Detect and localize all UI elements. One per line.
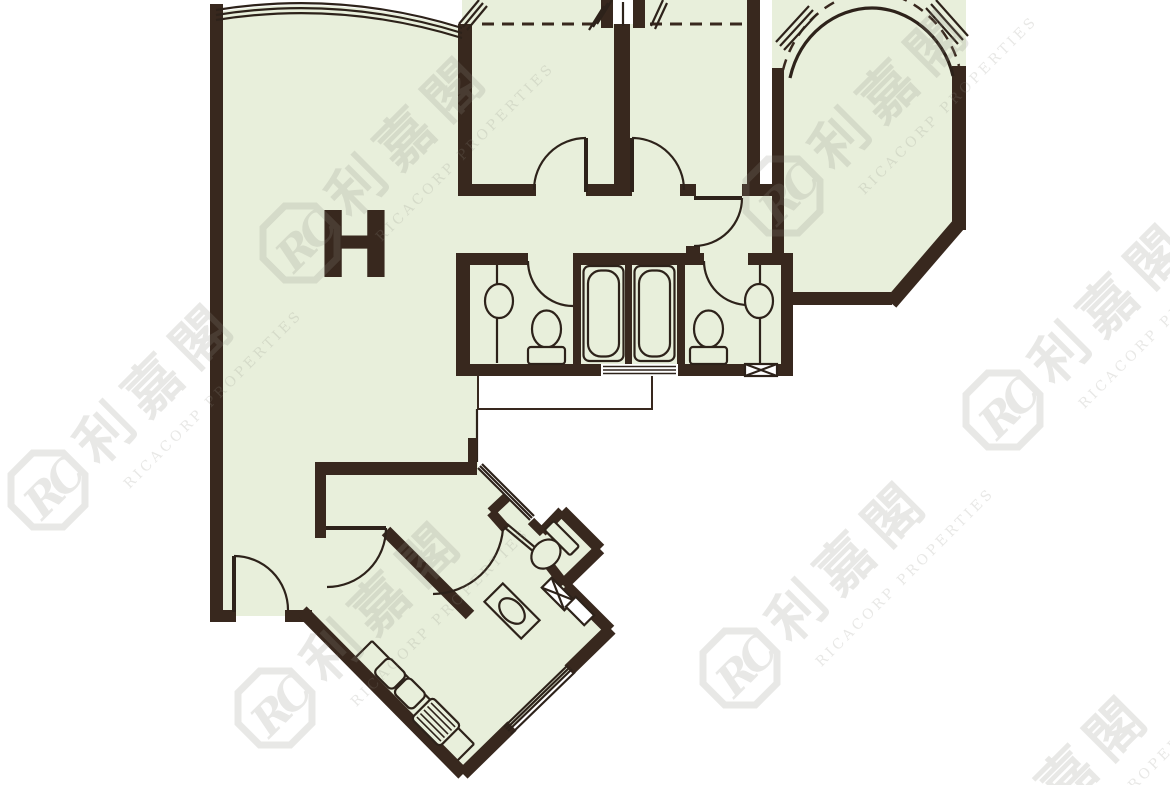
watermark-7: RC 利嘉閣 RICACORP PROPERTIES bbox=[910, 641, 1170, 785]
wall-tub-partition bbox=[625, 264, 632, 364]
bath1-tub bbox=[584, 266, 624, 361]
wall-stub-hallway bbox=[686, 246, 700, 256]
wall-master-bottom bbox=[786, 292, 892, 305]
wall-bath-partition-b bbox=[677, 264, 685, 364]
wall-corridor-c bbox=[680, 184, 696, 196]
dining-strip bbox=[222, 370, 478, 470]
lightwell-notch bbox=[478, 375, 652, 409]
svg-text:利嘉閣: 利嘉閣 bbox=[1018, 207, 1170, 397]
wall-bath-partition-a bbox=[573, 264, 581, 364]
floorplan-page: H RC 利嘉閣 RICACORP PROPERTIES RC 利嘉閣 RICA… bbox=[0, 0, 1170, 785]
floorplan-drawing: H RC 利嘉閣 RICACORP PROPERTIES RC 利嘉閣 RICA… bbox=[0, 0, 1170, 785]
bath2-toilet bbox=[690, 311, 727, 365]
wall-wing-top bbox=[315, 462, 477, 475]
wall-bath-left bbox=[456, 253, 470, 376]
wall-corridor-a bbox=[458, 184, 536, 196]
bath2-sink bbox=[745, 284, 773, 318]
wall-bath-right bbox=[781, 253, 793, 376]
wall-bedroom-partition bbox=[614, 24, 630, 196]
watermark-6: RC 利嘉閣 RICACORP PROPERTIES bbox=[951, 169, 1170, 479]
watermark-5: RC 利嘉閣 RICACORP PROPERTIES bbox=[688, 427, 998, 737]
wall-foyer-jamb bbox=[315, 462, 326, 538]
bath1-toilet bbox=[528, 311, 565, 365]
wall-bay-gap-b bbox=[633, 0, 645, 28]
wall-bath-top-b bbox=[573, 253, 704, 265]
bath2-tub bbox=[635, 266, 675, 361]
bath1-sink bbox=[485, 284, 513, 318]
bath2-x-window bbox=[745, 364, 777, 376]
wall-stub-notch bbox=[468, 438, 477, 464]
